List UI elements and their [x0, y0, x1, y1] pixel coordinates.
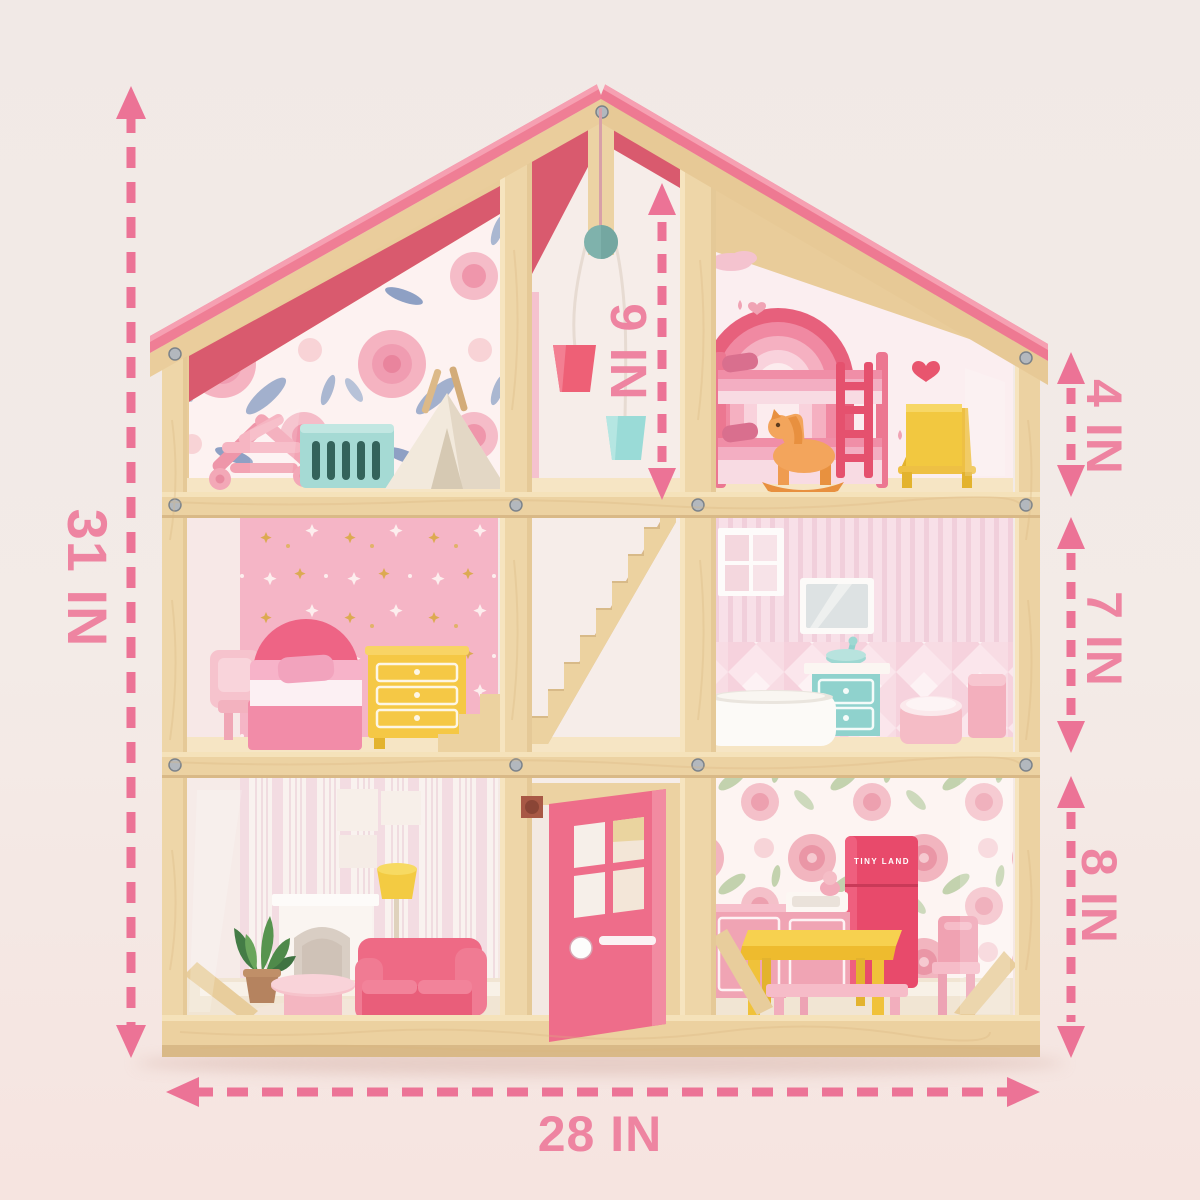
- svg-text:31 IN: 31 IN: [56, 509, 119, 648]
- svg-text:7 IN: 7 IN: [1076, 591, 1132, 687]
- svg-text:TINY LAND: TINY LAND: [854, 857, 910, 866]
- svg-text:8 IN: 8 IN: [1071, 848, 1127, 944]
- svg-text:9 IN: 9 IN: [600, 303, 657, 401]
- svg-text:28 IN: 28 IN: [538, 1106, 663, 1162]
- svg-text:4 IN: 4 IN: [1076, 379, 1132, 475]
